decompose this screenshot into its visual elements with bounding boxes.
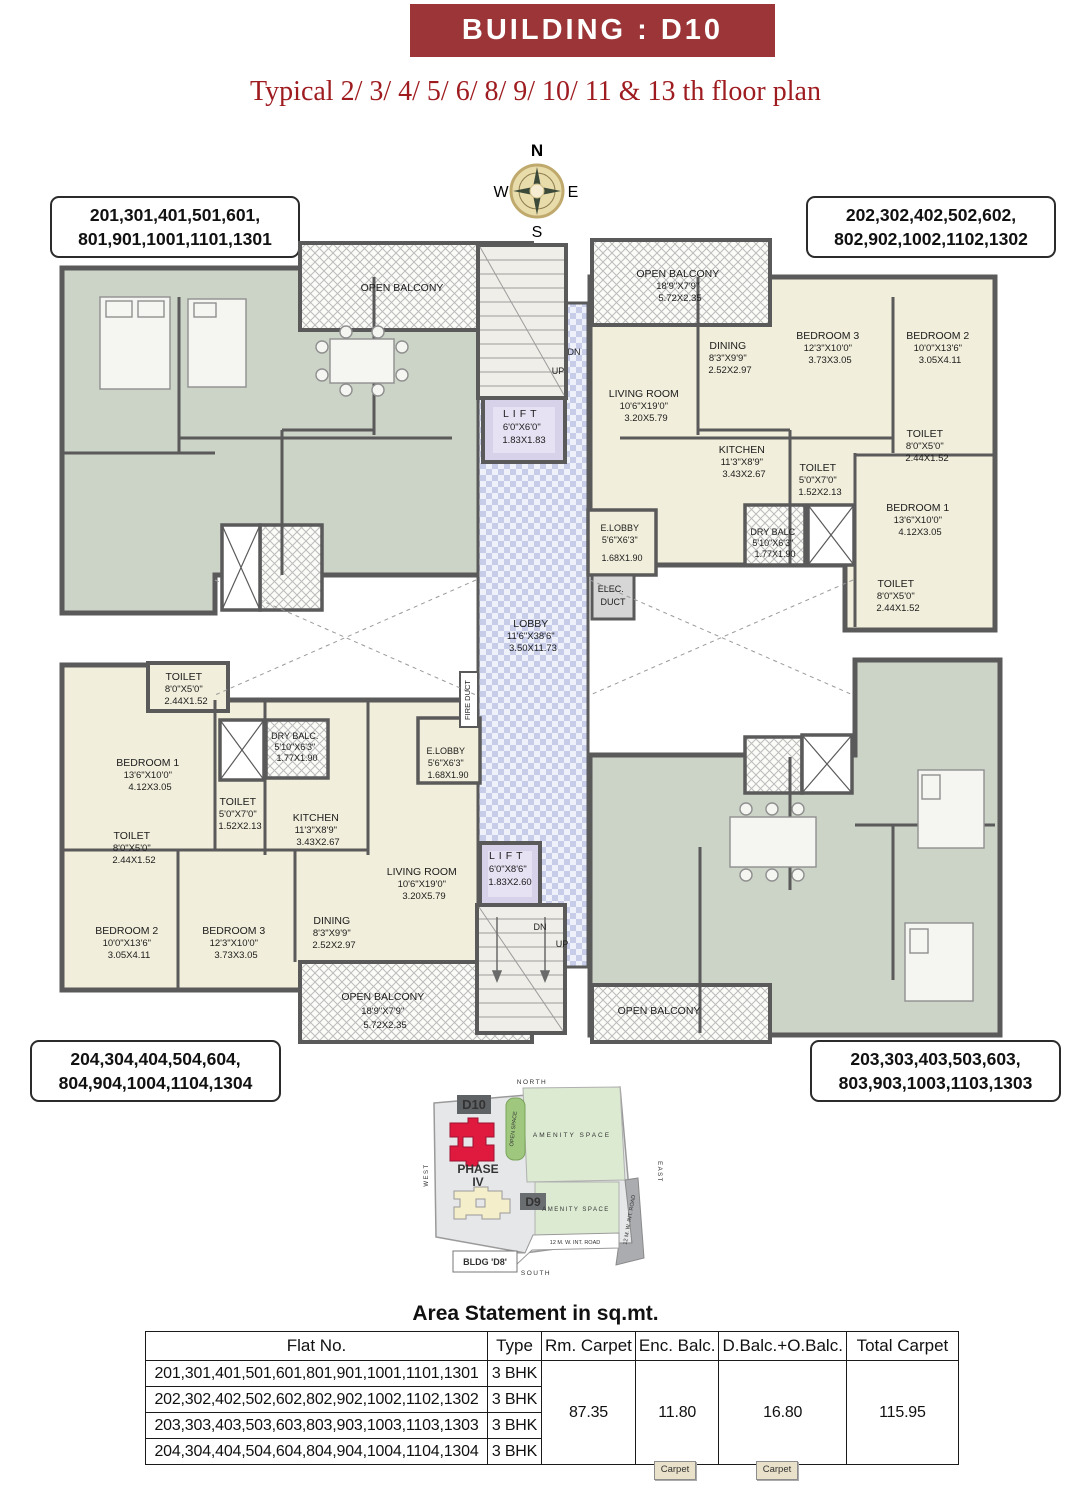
- total-carpet-value: 115.95: [846, 1361, 958, 1465]
- d-o-balc-value: 16.80: [719, 1361, 846, 1465]
- col-total-carpet: Total Carpet: [846, 1332, 958, 1361]
- floor-plan: OPEN BALCONY OPEN BALCONY 18'9"X7'9" 5.7…: [0, 235, 1071, 1045]
- room-label-dining-tr: DINING 8'3"X9'9" 2.52X2.97: [708, 336, 751, 376]
- room-label-e-lobby-tr: E.LOBBY 5'6"X6'3" 1.68X1.90: [601, 518, 644, 563]
- col-rm-carpet: Rm. Carpet: [542, 1332, 636, 1361]
- unit-numbers-line: 803,903,1003,1103,1303: [812, 1071, 1059, 1096]
- flats-cell: 201,301,401,501,601,801,901,1001,1101,13…: [146, 1361, 488, 1387]
- unit-numbers-line: 204,304,404,504,604,: [32, 1047, 279, 1072]
- col-flat-no: Flat No.: [146, 1332, 488, 1361]
- stair-dn-bottom: DN: [534, 922, 547, 932]
- flats-cell: 202,302,402,502,602,802,902,1002,1102,13…: [146, 1387, 488, 1413]
- unit-numbers-line: 804,904,1004,1104,1304: [32, 1071, 279, 1096]
- table-row: 201,301,401,501,601,801,901,1001,1101,13…: [146, 1361, 959, 1387]
- room-label-lift-top: LIFT 6'0"X6'0" 1.83X1.83: [502, 404, 545, 446]
- compass-n-label: N: [531, 141, 543, 160]
- room-label-e-lobby-bl: E.LOBBY 5'6"X6'3" 1.68X1.90: [427, 741, 470, 780]
- fire-duct-label: FIRE DUCT: [463, 680, 472, 720]
- unit-numbers-line: 203,303,403,503,603,: [812, 1047, 1059, 1072]
- carpet-chip-button[interactable]: Carpet: [756, 1461, 798, 1480]
- unit-numbers-line: 202,302,402,502,602,: [808, 203, 1054, 228]
- col-d-o-balc: D.Balc.+O.Balc.: [719, 1332, 846, 1361]
- type-cell: 3 BHK: [488, 1387, 542, 1413]
- col-type: Type: [488, 1332, 542, 1361]
- carpet-chip-button[interactable]: Carpet: [654, 1461, 696, 1480]
- stair-up-top: UP: [552, 366, 565, 376]
- site-key-plan: D10 D9 PHASE IV OPEN SPACE AMENITY SPACE…: [420, 1075, 730, 1295]
- compass-w-label: W: [493, 184, 509, 201]
- bldg-d8-label: BLDG 'D8': [463, 1257, 507, 1267]
- site-east-label: EAST: [656, 1161, 662, 1183]
- staircase-bottom: [477, 905, 565, 1033]
- type-cell: 3 BHK: [488, 1439, 542, 1465]
- compass-e-label: E: [568, 184, 579, 201]
- room-label-elec-duct: ELEC. DUCT: [598, 579, 628, 607]
- flats-cell: 204,304,404,504,604,804,904,1004,1104,13…: [146, 1439, 488, 1465]
- stair-dn-top: DN: [568, 347, 581, 357]
- room-label-lift-bottom: LIFT 6'0"X8'6" 1.83X2.60: [488, 846, 531, 888]
- room-label-kitchen-tr: KITCHEN 11'3"X8'9" 3.43X2.67: [719, 440, 770, 480]
- area-statement-title: Area Statement in sq.mt.: [0, 1302, 1071, 1326]
- room-label-toilet-mid-bl: TOILET 5'0"X7'0" 1.52X2.13: [218, 792, 261, 832]
- area-statement-table: Flat No. Type Rm. Carpet Enc. Balc. D.Ba…: [145, 1331, 959, 1465]
- building-title-bar: BUILDING : D10: [410, 4, 775, 57]
- phase-label-2: IV: [472, 1175, 483, 1189]
- compass-rose-icon: N S W E: [493, 140, 581, 240]
- building-title: BUILDING : D10: [462, 14, 723, 47]
- room-label-toilet-mid-tr: TOILET 5'0"X7'0" 1.52X2.13: [798, 458, 841, 498]
- room-label-dry-balc-tr: DRY BALC 5'10"X6'3" 1.77X1.90: [750, 522, 799, 559]
- site-south-label: SOUTH: [521, 1270, 551, 1277]
- room-label-toilet-left-bl: TOILET 8'0"X5'0" 2.44X1.52: [112, 826, 155, 866]
- table-header-row: Flat No. Type Rm. Carpet Enc. Balc. D.Ba…: [146, 1332, 959, 1361]
- room-label-open-balcony-br: OPEN BALCONY: [618, 1005, 701, 1017]
- room-label-dining-bl: DINING 8'3"X9'9" 2.52X2.97: [312, 911, 355, 951]
- d10-badge-label: D10: [462, 1097, 486, 1112]
- unit-numbers-bottom-right: 203,303,403,503,603, 803,903,1003,1103,1…: [810, 1040, 1061, 1102]
- col-enc-balc: Enc. Balc.: [635, 1332, 719, 1361]
- room-label-dry-balc-bl: DRY BALC. 5'10"X6'3" 1.77X1.90: [271, 726, 323, 763]
- d9-badge-label: D9: [525, 1195, 541, 1209]
- type-cell: 3 BHK: [488, 1413, 542, 1439]
- room-label-lobby: LOBBY 11'6"X38'6" 3.50X11.73: [507, 614, 559, 654]
- room-label-kitchen-bl: KITCHEN 11'3"X8'9" 3.43X2.67: [293, 808, 344, 848]
- floor-plan-subtitle: Typical 2/ 3/ 4/ 5/ 6/ 8/ 9/ 10/ 11 & 13…: [0, 76, 1071, 108]
- rm-carpet-value: 87.35: [542, 1361, 636, 1465]
- unit-numbers-bottom-left: 204,304,404,504,604, 804,904,1004,1104,1…: [30, 1040, 281, 1102]
- room-label-toilet-top-bl: TOILET 8'0"X5'0" 2.44X1.52: [164, 667, 207, 707]
- flats-cell: 203,303,403,503,603,803,903,1003,1103,13…: [146, 1413, 488, 1439]
- amenity-space-1-label: AMENITY SPACE: [533, 1132, 611, 1139]
- amenity-space-2-label: AMENITY SPACE: [542, 1207, 610, 1213]
- room-label-toilet-bottom-tr: TOILET 8'0"X5'0" 2.44X1.52: [876, 574, 919, 614]
- stair-up-bottom: UP: [556, 939, 569, 949]
- road-bottom-label: 12 M. W. INT. ROAD: [550, 1240, 600, 1246]
- room-label-open-balcony-tl: OPEN BALCONY: [361, 282, 444, 294]
- site-west-label: WEST: [424, 1163, 430, 1186]
- phase-label-1: PHASE: [457, 1162, 498, 1176]
- site-north-label: NORTH: [517, 1079, 548, 1086]
- type-cell: 3 BHK: [488, 1361, 542, 1387]
- enc-balc-value: 11.80: [635, 1361, 719, 1465]
- page: BUILDING : D10 Typical 2/ 3/ 4/ 5/ 6/ 8/…: [0, 0, 1071, 1500]
- unit-numbers-line: 201,301,401,501,601,: [52, 203, 298, 228]
- room-label-toilet-top-tr: TOILET 8'0"X5'0" 2.44X1.52: [905, 424, 948, 464]
